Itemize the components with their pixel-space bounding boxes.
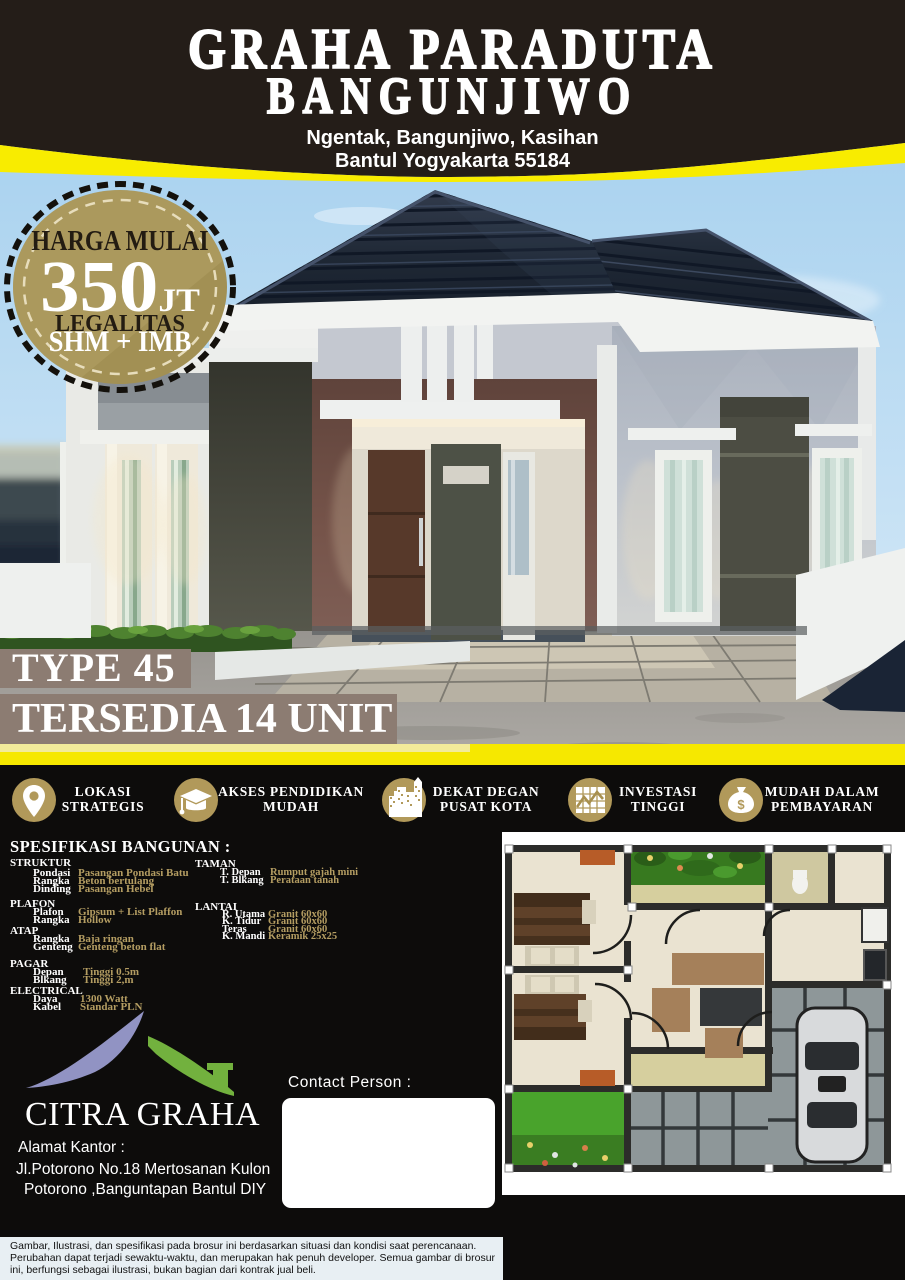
svg-text:$: $ — [737, 797, 745, 812]
